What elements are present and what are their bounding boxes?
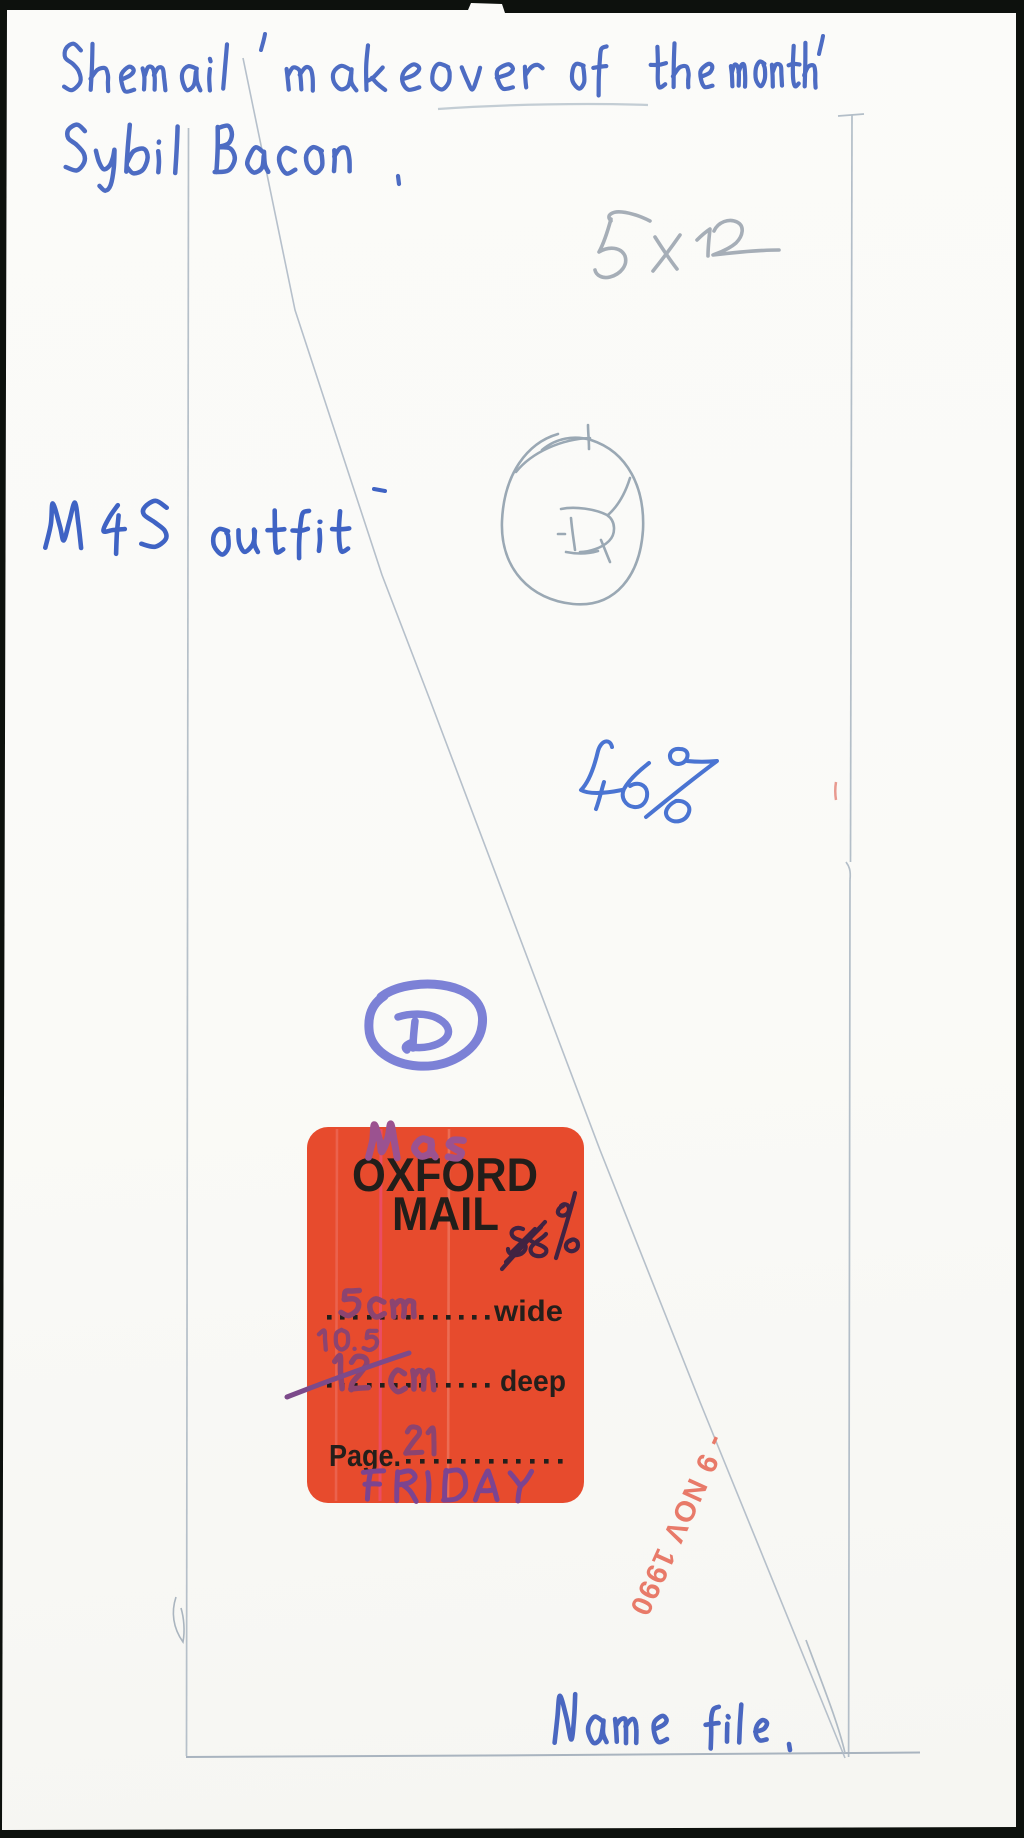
svg-text:- 9 NOV 1990: - 9 NOV 1990 [623,1430,733,1621]
svg-text:Page.: Page. [329,1438,401,1473]
svg-text:deep: deep [500,1365,566,1398]
svg-text:MAIL: MAIL [392,1187,499,1240]
svg-text:wide: wide [493,1295,563,1328]
